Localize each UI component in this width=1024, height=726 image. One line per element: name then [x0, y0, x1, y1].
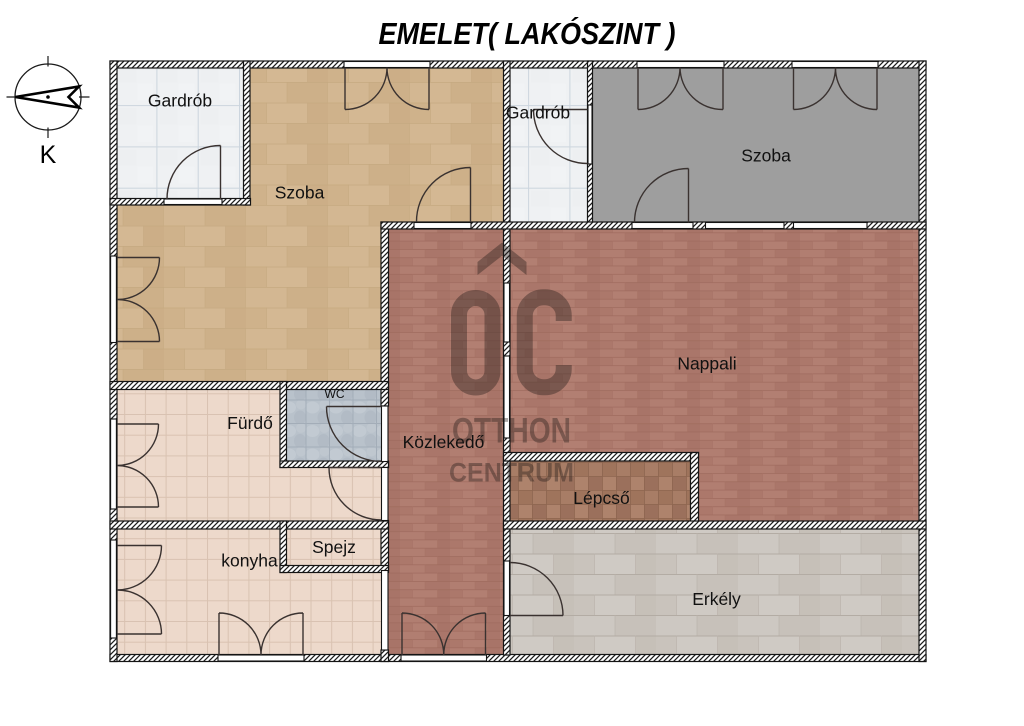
- svg-text:CENTRUM: CENTRUM: [449, 458, 574, 488]
- svg-text:Lépcső: Lépcső: [573, 488, 630, 508]
- svg-text:Szoba: Szoba: [741, 146, 791, 166]
- svg-text:OTTHON: OTTHON: [452, 412, 571, 451]
- svg-text:EMELET( LAKÓSZINT ): EMELET( LAKÓSZINT ): [379, 16, 676, 51]
- svg-text:Nappali: Nappali: [677, 354, 736, 374]
- svg-text:Szoba: Szoba: [275, 183, 325, 203]
- svg-text:Gardrób: Gardrób: [506, 103, 570, 123]
- svg-text:konyha: konyha: [221, 551, 278, 571]
- svg-text:Gardrób: Gardrób: [148, 91, 212, 111]
- svg-text:Fürdő: Fürdő: [227, 413, 273, 433]
- svg-text:Erkély: Erkély: [692, 589, 741, 609]
- svg-text:Spejz: Spejz: [312, 537, 356, 557]
- svg-text:WC: WC: [325, 387, 345, 401]
- svg-text:K: K: [40, 141, 57, 169]
